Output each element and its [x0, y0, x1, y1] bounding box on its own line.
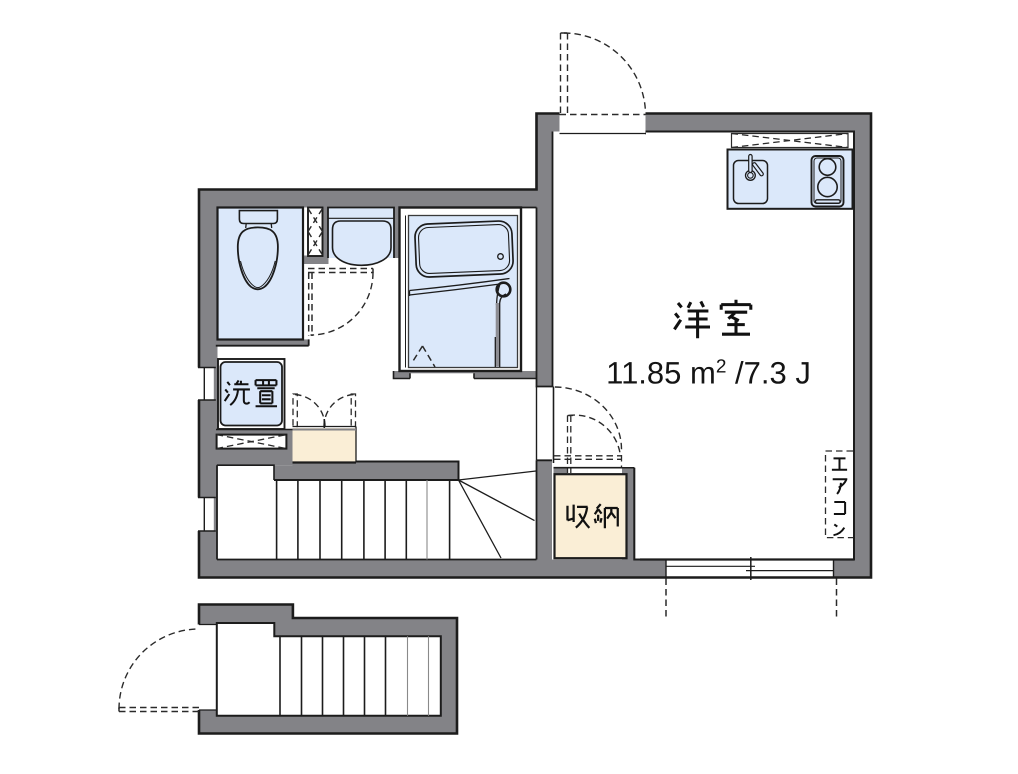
svg-text:11.85 m2 /7.3 J: 11.85 m2 /7.3 J — [606, 356, 811, 391]
